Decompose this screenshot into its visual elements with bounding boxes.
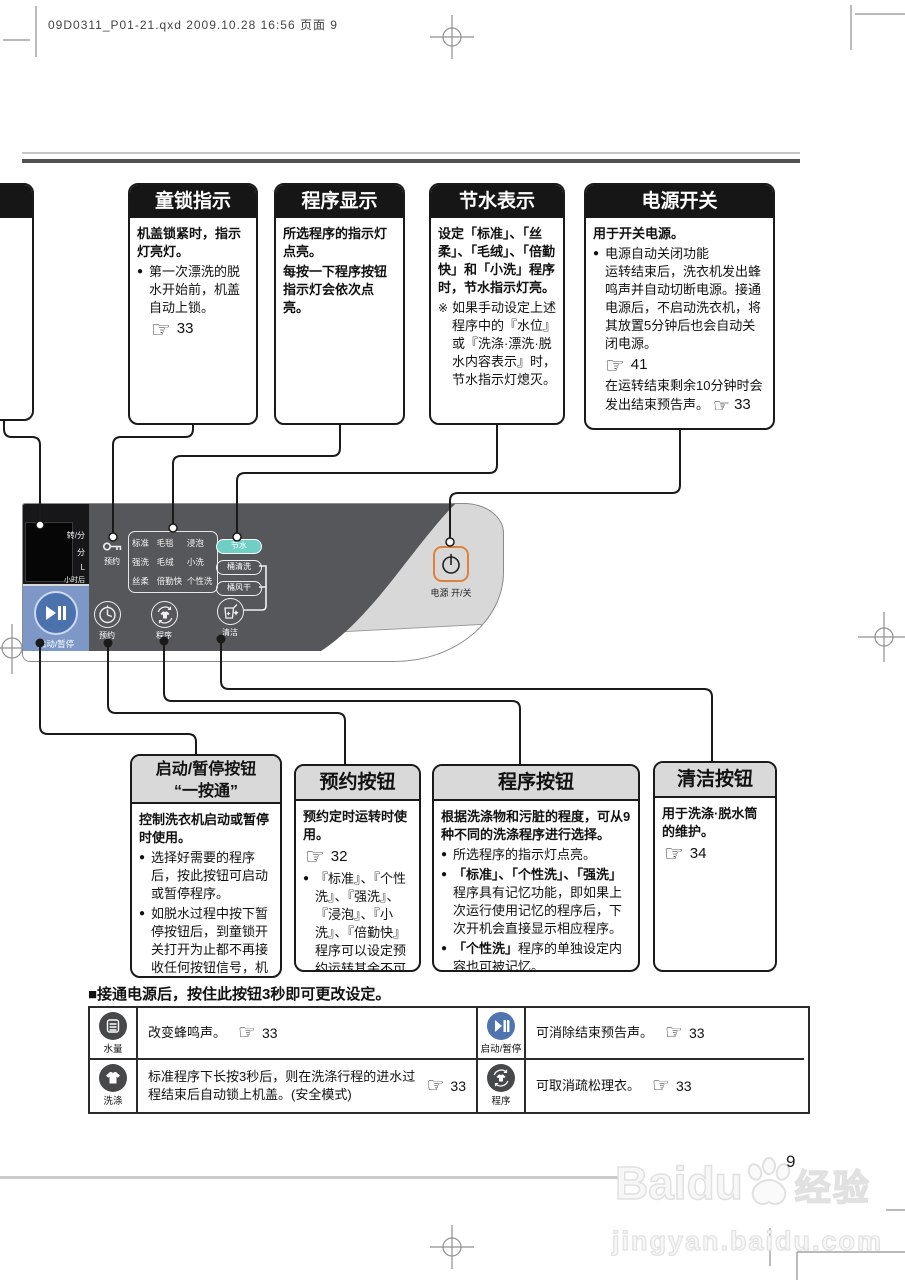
divider-line — [22, 159, 800, 163]
key-icon — [102, 540, 124, 553]
callout-bullet: 选择好需要的程序后，按此按钮可启动或暂停程序。 — [151, 849, 274, 903]
pointing-hand-icon: ☞ — [713, 397, 730, 416]
bullet-icon: ● — [441, 846, 453, 864]
callout-title: 童锁指示 — [130, 185, 256, 218]
start-pause-key: 启动/暂停 — [478, 1008, 526, 1060]
reserve-lock-label: 预约 — [97, 556, 127, 567]
bullet-icon: ● — [441, 866, 453, 938]
reserve-button-label: 预约 — [87, 630, 127, 641]
water-saving-indicator: 节水 — [216, 539, 262, 554]
callout-bullet: 所选程序的指示灯点亮。 — [453, 846, 632, 864]
callout-power-switch: 电源开关 用于开关电源。 ● 电源自动关闭功能 运转结束后，洗衣机发出蜂鸣声并自… — [584, 183, 775, 430]
callout-bullet-body: 运转结束后，洗衣机发出蜂鸣声并自动切断电源。接通电源后，不启动洗衣机，将其放置5… — [605, 263, 767, 353]
program-name: 毛毯 — [157, 537, 187, 549]
start-pause-area: 启动/暂停 — [23, 586, 89, 651]
callout-title: 启动/暂停按钮 “一按通” — [132, 756, 280, 804]
pointing-hand-icon: ☞ — [305, 846, 325, 868]
program-key: 程序 — [478, 1060, 526, 1112]
bullet-icon: ● — [139, 849, 151, 903]
callout-bullet: 「个性洗」程序的单独设定内容也可被记忆。 — [453, 940, 632, 972]
pause-bar-icon — [58, 606, 61, 620]
control-panel-illustration: 转/分 分 L 小时后 启动/暂停 预约 标准 毛毯 浸泡 强洗 毛绒 小洗 — [22, 503, 504, 662]
callout-bullet: 如脱水过程中按下暂停按钮后，到童锁开关打开为止都不再接收任何按钮信号，机盖亦不能… — [151, 905, 274, 978]
settings-heading: ■接通电源后，按住此按钮3秒即可更改设定。 — [88, 983, 390, 1004]
power-switch-label: 电源 开/关 — [421, 586, 481, 599]
program-name: 标准 — [132, 537, 157, 549]
partial-callout-box — [0, 183, 34, 421]
watermark-text: 经验 — [795, 1170, 871, 1206]
program-name: 小洗 — [187, 556, 214, 568]
pointing-hand-icon: ☞ — [652, 1076, 670, 1096]
watermark-url: jingyan.baidu.com — [612, 1226, 883, 1257]
tub-dry-indicator: 桶风干 — [216, 581, 262, 596]
key-label: 启动/暂停 — [481, 1041, 522, 1055]
callout-bullet: 第一次漂洗的脱水开始前，机盖自动上锁。 — [149, 263, 250, 317]
clock-icon — [98, 605, 117, 624]
callout-note: 如果手动设定上述程序中的『水位』或『洗涤·漂洗·脱水内容表示』时，节水指示灯熄灭… — [452, 299, 557, 389]
pointing-hand-icon: ☞ — [151, 319, 171, 341]
program-button-label: 程序 — [144, 630, 184, 641]
footer-divider — [0, 1176, 618, 1179]
page-ref: 33 — [676, 1077, 692, 1096]
settings-row-text: 可取消疏松理衣。 ☞33 — [526, 1060, 804, 1112]
clean-button-label: 清洁 — [210, 627, 250, 638]
program-name: 毛绒 — [157, 556, 187, 568]
tub-wash-indicator: 桶清洗 — [216, 560, 262, 575]
settings-row-text: 标准程序下长按3秒后，则在洗涤行程的进水过程结束后自动锁上机盖。(安全模式) ☞… — [138, 1060, 478, 1112]
note-icon: ※ — [438, 299, 452, 389]
start-pause-label: 启动/暂停 — [23, 638, 89, 650]
divider-line — [22, 152, 800, 154]
bullet-icon: ● — [303, 870, 315, 972]
page-ref: 33 — [450, 1077, 466, 1096]
callout-intro: 设定「标准」、「丝柔」、「毛绒」、「倍勤快」和「小洗」程序时，节水指示灯亮。 — [438, 225, 557, 297]
shirt-cycle-icon — [155, 605, 175, 625]
callout-clean-button: 清洁按钮 用于洗涤·脱水筒的维护。 ☞ 34 — [653, 761, 777, 972]
display-unit-label: 分 — [77, 547, 85, 558]
callout-intro: 用于洗涤·脱水筒的维护。 — [662, 805, 769, 841]
pointing-hand-icon: ☞ — [605, 355, 625, 377]
start-pause-icon — [487, 1012, 515, 1040]
display-unit-label: L — [81, 563, 85, 572]
water-level-key: 水量 — [90, 1008, 138, 1060]
page-ref: 33 — [689, 1024, 705, 1043]
pause-bar-icon — [63, 606, 66, 620]
bullet-icon: ● — [593, 245, 605, 416]
callout-intro: 根据洗涤物和污脏的程度，可从9种不同的洗涤程序进行选择。 — [441, 808, 632, 844]
manual-page: 09D0311_P01-21.qxd 2009.10.28 16:56 页面 9… — [0, 0, 905, 1280]
program-name: 浸泡 — [187, 537, 214, 549]
bullet-icon: ● — [139, 905, 151, 978]
callout-title: 节水表示 — [431, 185, 563, 218]
shirt-icon — [99, 1064, 127, 1092]
page-ref: 33 — [177, 319, 194, 340]
watermark-text: Baidu — [615, 1160, 743, 1206]
display-unit-label: 转/分 — [67, 530, 85, 541]
settings-table: 水量 改变蜂鸣声。 ☞33 启动/暂停 可消除结束预告声。 ☞33 洗涤 标准程 — [88, 1006, 810, 1114]
callout-reserve-button: 预约按钮 预约定时运转时使用。 ☞ 32 ● 『标准』、『个性洗』、『强洗』、『… — [294, 764, 421, 972]
callout-title: 电源开关 — [586, 185, 773, 218]
page-ref: 33 — [262, 1024, 278, 1043]
page-ref: 41 — [631, 355, 648, 376]
pointing-hand-icon: ☞ — [664, 843, 684, 865]
clean-button[interactable] — [217, 598, 244, 625]
key-label: 程序 — [491, 1093, 510, 1107]
callout-intro: 预约定时运转时使用。 — [303, 808, 413, 844]
callout-intro: 机盖锁紧时，指示灯亮灯。 — [137, 225, 250, 261]
clean-tub-icon — [221, 602, 240, 621]
callout-tail: 在运转结束剩余10分钟时会发出结束预告声。☞33 — [605, 377, 767, 416]
program-name: 倍勤快 — [157, 575, 187, 587]
callout-title: 程序显示 — [276, 185, 403, 218]
settings-row-text: 改变蜂鸣声。 ☞33 — [138, 1008, 478, 1060]
program-name: 强洗 — [132, 556, 157, 568]
reserve-button[interactable] — [94, 601, 121, 628]
callout-intro: 控制洗衣机启动或暂停时使用。 — [139, 811, 274, 847]
program-name: 丝柔 — [132, 575, 157, 587]
callout-start-pause-button: 启动/暂停按钮 “一按通” 控制洗衣机启动或暂停时使用。 ● 选择好需要的程序后… — [130, 754, 282, 978]
callout-bullet: 「标准」、「个性洗」、「强洗」程序具有记忆功能，即如果上次运行使用记忆的程序后，… — [453, 866, 632, 938]
callout-title: 程序按钮 — [434, 766, 638, 801]
bullet-icon: ● — [137, 263, 149, 317]
wash-key: 洗涤 — [90, 1060, 138, 1112]
callout-program-display: 程序显示 所选程序的指示灯点亮。 每按一下程序按钮指示灯会依次点亮。 — [274, 183, 405, 425]
callout-line: 每按一下程序按钮指示灯会依次点亮。 — [283, 263, 397, 317]
pointing-hand-icon: ☞ — [665, 1023, 683, 1043]
settings-row-text: 可消除结束预告声。 ☞33 — [526, 1008, 804, 1060]
callout-title: 清洁按钮 — [655, 763, 775, 798]
page-ref: 33 — [734, 396, 751, 413]
water-level-icon — [99, 1012, 127, 1040]
callout-child-lock-indicator: 童锁指示 机盖锁紧时，指示灯亮灯。 ● 第一次漂洗的脱水开始前，机盖自动上锁。 … — [128, 183, 258, 425]
pointing-hand-icon: ☞ — [238, 1023, 256, 1043]
file-header: 09D0311_P01-21.qxd 2009.10.28 16:56 页面 9 — [48, 16, 338, 33]
play-icon — [46, 606, 56, 620]
callout-bullet-title: 电源自动关闭功能 — [605, 245, 767, 263]
page-ref: 32 — [331, 847, 348, 868]
power-button[interactable] — [433, 546, 469, 582]
panel-display: 转/分 分 L 小时后 — [23, 504, 89, 584]
callout-title: 预约按钮 — [296, 766, 419, 801]
callout-intro: 用于开关电源。 — [593, 225, 767, 243]
baidu-watermark: Baidu 经验 — [615, 1156, 905, 1206]
start-pause-button[interactable] — [34, 591, 78, 635]
callout-line: 所选程序的指示灯点亮。 — [283, 225, 397, 261]
callout-bullet: 『标准』、『个性洗』、『强洗』、『浸泡』、『小洗』、『倍勤快』程序可以设定预约运… — [315, 870, 413, 972]
callout-water-saving: 节水表示 设定「标准」、「丝柔」、「毛绒」、「倍勤快」和「小洗」程序时，节水指示… — [429, 183, 565, 425]
display-unit-label: 小时后 — [64, 575, 85, 585]
page-ref: 34 — [690, 844, 707, 865]
bullet-icon: ● — [441, 940, 453, 972]
program-button[interactable] — [151, 601, 178, 628]
partial-callout-header — [0, 185, 32, 218]
page-number: 9 — [786, 1152, 795, 1172]
callout-program-button: 程序按钮 根据洗涤物和污脏的程度，可从9种不同的洗涤程序进行选择。 ● 所选程序… — [432, 764, 640, 972]
program-name: 个性洗 — [187, 575, 214, 587]
power-icon — [440, 552, 462, 576]
key-label: 洗涤 — [103, 1093, 122, 1107]
shirt-cycle-icon — [487, 1064, 515, 1092]
pointing-hand-icon: ☞ — [426, 1076, 444, 1096]
key-label: 水量 — [103, 1041, 122, 1055]
program-indicator-grid: 标准 毛毯 浸泡 强洗 毛绒 小洗 丝柔 倍勤快 个性洗 — [128, 531, 218, 593]
